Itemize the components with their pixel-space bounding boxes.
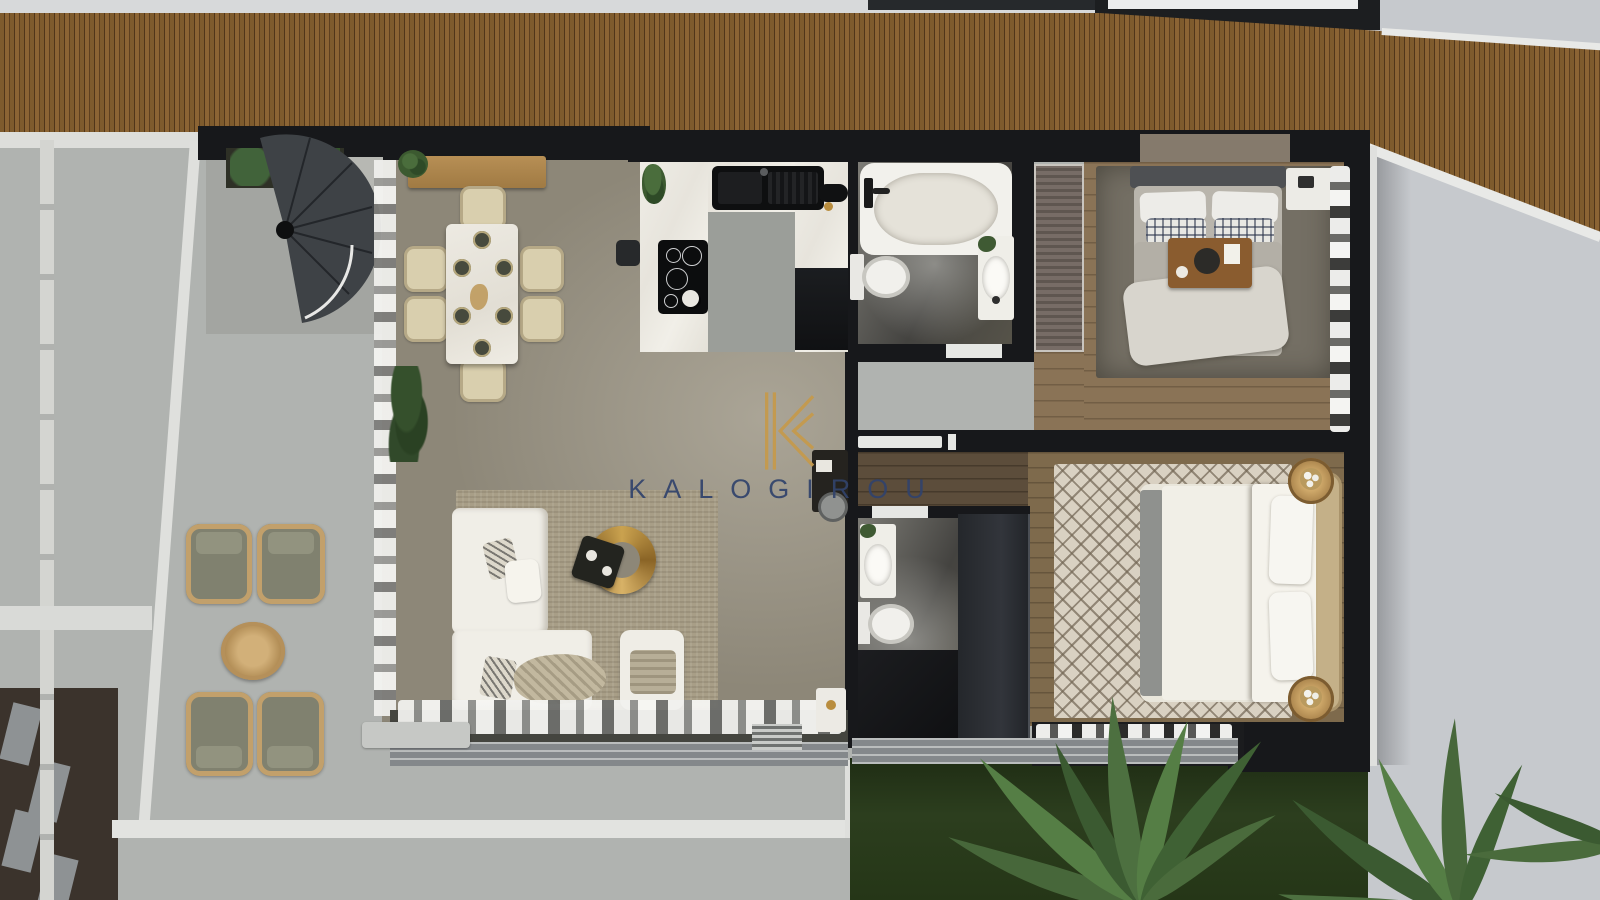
cooktop-pot — [682, 290, 699, 307]
chair-back-cushion — [268, 532, 314, 554]
nightstand2-flowers — [1300, 468, 1322, 490]
kettle — [818, 184, 848, 202]
kitchen-sink-drainer — [768, 172, 818, 204]
bed2-gray-runner — [1140, 490, 1164, 696]
brand-name-text: KALOGIROU — [620, 474, 950, 505]
sideboard — [408, 156, 546, 188]
door-step-grate — [752, 724, 802, 750]
kitchen-faucet — [760, 168, 768, 176]
place-setting — [473, 339, 491, 357]
cooktop-ring — [666, 268, 688, 290]
dining-chair — [460, 358, 506, 402]
dining-chair — [404, 296, 448, 342]
toilet2-bowl — [868, 604, 914, 644]
kitchen-floor — [702, 212, 798, 352]
place-setting — [473, 231, 491, 249]
dining-chair — [520, 296, 564, 342]
kitchen-black-appliance — [795, 268, 848, 350]
tray-cup — [586, 550, 597, 561]
vanity1-faucet — [992, 296, 1000, 304]
bed1-headboard — [1130, 166, 1286, 188]
cooktop-ring — [664, 294, 678, 308]
paver-strip — [40, 140, 54, 900]
curb-below-deck — [0, 132, 206, 148]
tray-cup — [602, 566, 612, 576]
bedroom1-curtains — [1330, 166, 1350, 432]
brand-logo-k-icon — [757, 392, 815, 470]
bar-stool — [616, 240, 640, 266]
sofa-cushion-patterned — [479, 656, 517, 701]
bedroom1-floor-strip — [1034, 352, 1084, 432]
tray-card — [1224, 244, 1240, 264]
bathtub-basin — [874, 173, 998, 245]
neighbor-terrace-wall-shadow — [1377, 150, 1411, 765]
place-setting — [495, 307, 513, 325]
dining-chair — [520, 246, 564, 292]
bathroom2-door-threshold — [872, 506, 928, 518]
ottoman-blanket — [630, 650, 676, 694]
toilet1-bowl — [862, 256, 910, 298]
chair-back-cushion — [196, 746, 242, 768]
wall-bathroom1-bottom — [845, 344, 1034, 362]
tray-plate — [1194, 248, 1220, 274]
vanity1-sink — [982, 256, 1010, 300]
skylight-glass — [1108, 0, 1358, 9]
place-setting — [453, 307, 471, 325]
cooktop-ring — [666, 248, 681, 263]
floor-plan-render: KALOGIROU — [0, 0, 1600, 900]
bed2-pillow — [1268, 591, 1313, 680]
kettle-gold-knob — [824, 202, 833, 211]
chair-back-cushion — [267, 746, 313, 768]
chair-back-cushion — [196, 532, 242, 554]
outdoor-lounge-chair — [257, 692, 324, 776]
outdoor-lounge-chair — [186, 524, 252, 604]
outdoor-lounge-chair — [186, 692, 253, 776]
sliding-door-panel — [362, 722, 470, 748]
roof-dark-slab — [868, 0, 1132, 10]
kitchen-sink-basin — [718, 172, 762, 204]
terrace-railing-line — [112, 820, 856, 838]
bathtub-faucet — [864, 178, 873, 208]
nightstand1-item — [1298, 176, 1314, 188]
palm-tree — [830, 690, 1600, 900]
place-setting — [453, 259, 471, 277]
sofa-cushion — [504, 558, 542, 603]
spiral-staircase — [180, 120, 400, 340]
living-plant — [384, 366, 434, 462]
bathroom1-door-threshold — [946, 344, 1002, 358]
bed2-sheet — [1162, 486, 1258, 700]
sideboard-plant — [398, 150, 428, 178]
wall-bathroom1-right — [1012, 162, 1034, 348]
vanity2-sink — [864, 544, 892, 586]
dining-chair — [404, 246, 448, 292]
outdoor-round-table — [221, 622, 285, 680]
bedroom1-closet — [1034, 164, 1084, 352]
bathtub-faucet-spout — [872, 188, 890, 194]
kitchen-plant — [642, 164, 666, 204]
tray-mug — [1176, 266, 1188, 278]
place-setting — [495, 259, 513, 277]
bedroom1-headboard-wall — [1140, 134, 1290, 162]
cooktop-ring — [682, 246, 702, 266]
outdoor-lounge-chair — [257, 524, 325, 604]
bed2-pillow — [1268, 495, 1313, 584]
watermark: KALOGIROU — [620, 390, 950, 500]
terrace-walk-line — [0, 606, 152, 630]
